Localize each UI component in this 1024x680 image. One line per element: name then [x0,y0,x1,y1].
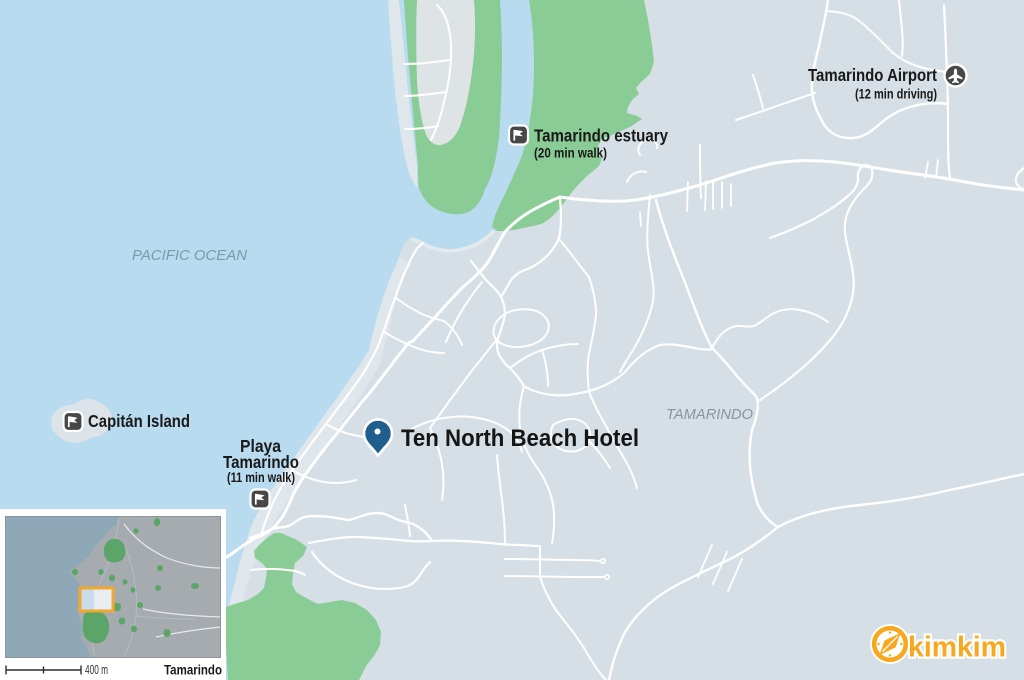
svg-text:(12 min driving): (12 min driving) [855,86,937,102]
svg-text:Tamarindo estuary: Tamarindo estuary [534,126,668,146]
svg-text:kimkim: kimkim [908,632,1006,664]
svg-text:Ten North Beach Hotel: Ten North Beach Hotel [401,425,639,452]
svg-text:400 m: 400 m [85,663,108,677]
svg-text:(20 min walk): (20 min walk) [534,145,607,161]
svg-text:Capitán Island: Capitán Island [88,411,190,431]
svg-text:Tamarindo Airport: Tamarindo Airport [808,65,937,85]
svg-text:TAMARINDO: TAMARINDO [666,406,753,423]
svg-text:(11 min walk): (11 min walk) [227,469,295,485]
svg-text:Tamarindo: Tamarindo [164,663,222,678]
svg-text:PACIFIC OCEAN: PACIFIC OCEAN [132,247,247,264]
